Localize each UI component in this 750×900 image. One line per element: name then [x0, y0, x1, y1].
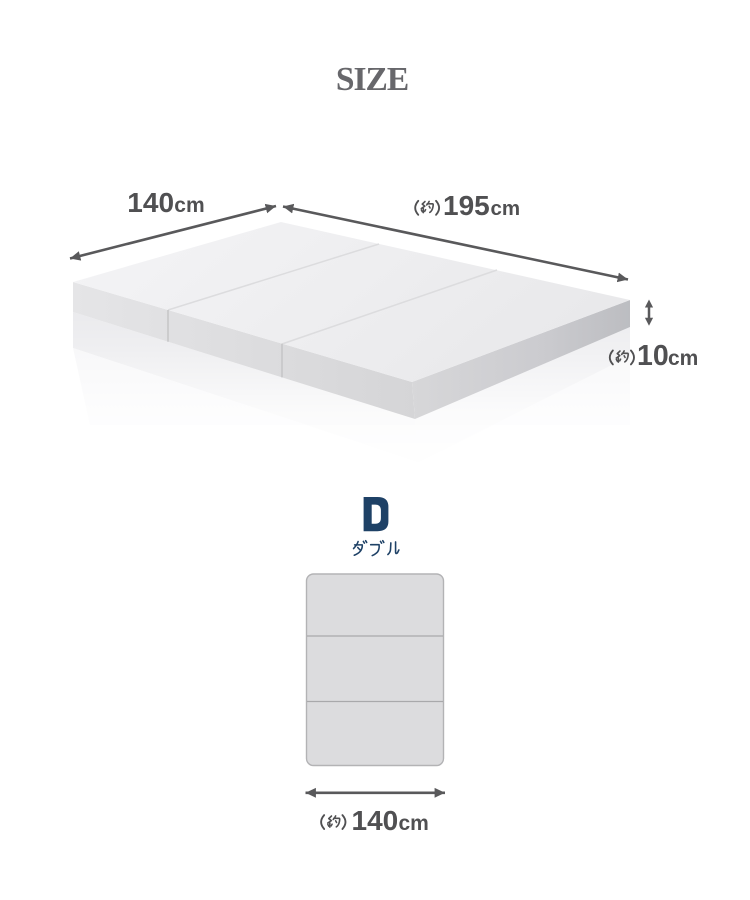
svg-text:cm: cm	[491, 197, 521, 220]
svg-text:10: 10	[637, 340, 669, 372]
svg-text:195: 195	[443, 190, 490, 221]
svg-text:SIZE: SIZE	[336, 61, 408, 98]
svg-text:cm: cm	[174, 194, 204, 217]
svg-text:140: 140	[127, 187, 174, 218]
svg-text:140: 140	[352, 805, 399, 836]
svg-text:cm: cm	[668, 347, 698, 370]
svg-text:cm: cm	[399, 812, 429, 835]
